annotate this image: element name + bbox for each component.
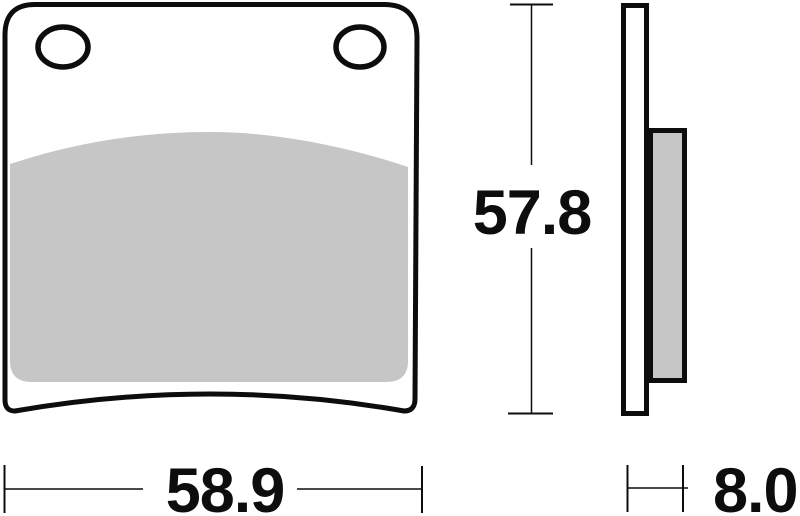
backing-plate-side [624, 6, 647, 414]
dimension-thickness-label: 8.0 [713, 456, 798, 516]
dimension-height-label: 57.8 [473, 178, 592, 248]
dimension-width: 58.9 [5, 456, 423, 516]
drawing-canvas: 58.9 57.8 8.0 [0, 0, 800, 516]
front-view [5, 5, 417, 412]
mounting-hole-right-icon [336, 27, 384, 67]
dimension-thickness: 8.0 [627, 456, 798, 516]
mounting-hole-left-icon [38, 27, 88, 67]
brake-pad-technical-drawing: 58.9 57.8 8.0 [0, 0, 800, 516]
side-view [624, 6, 685, 414]
dimension-height: 57.8 [473, 5, 592, 414]
friction-material-side [651, 131, 685, 381]
friction-material-front [10, 132, 408, 382]
dimension-width-label: 58.9 [166, 456, 285, 516]
